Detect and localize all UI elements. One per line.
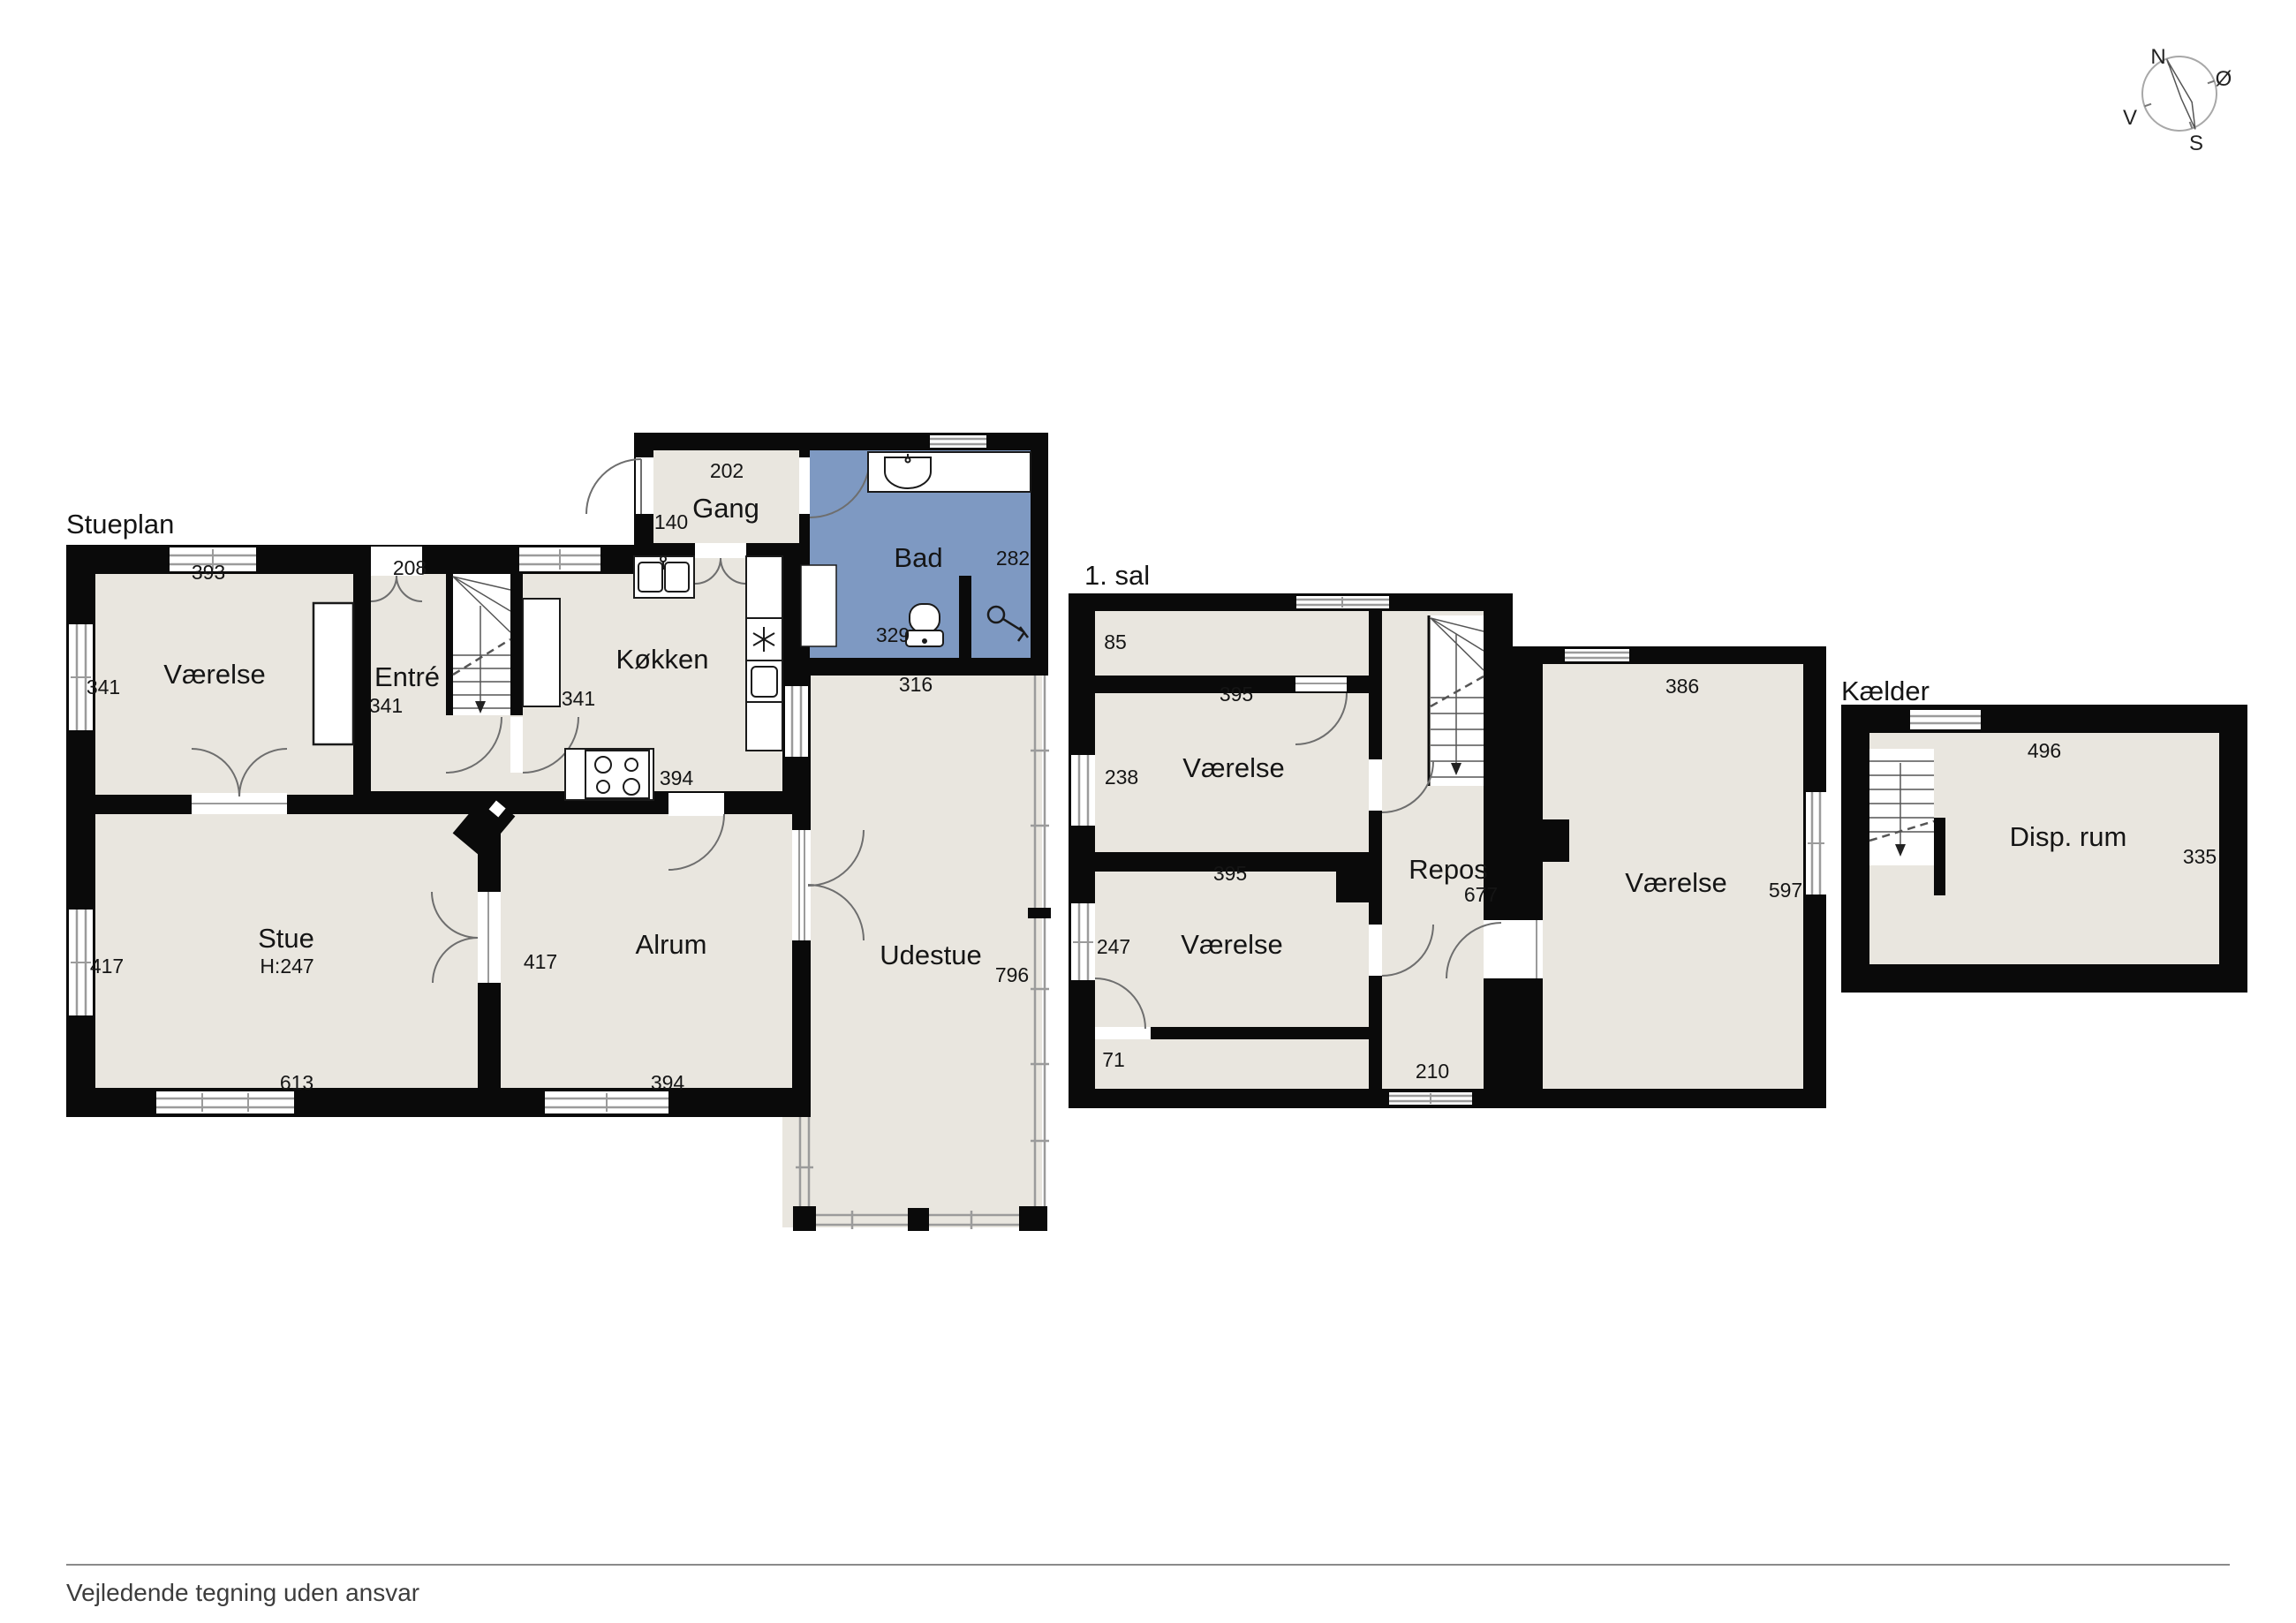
room-label-vaerelse-1: Værelse	[1182, 752, 1284, 783]
floor-first: 1. sal 85 395 Værelse 238 395 Værelse 24…	[1069, 560, 1826, 1108]
room-label-disp-rum: Disp. rum	[2010, 821, 2127, 852]
window	[1806, 792, 1826, 895]
stove-icon	[585, 751, 649, 798]
toilet-icon	[906, 604, 943, 646]
window	[156, 1091, 294, 1113]
door-opening	[799, 457, 810, 514]
window	[1296, 596, 1389, 608]
staircase-stueplan	[453, 574, 510, 715]
room-label-alrum: Alrum	[636, 929, 707, 960]
dim-alrum-height: 417	[524, 950, 557, 973]
dim-udestue-width: 316	[899, 673, 933, 696]
dim-stue-width: 613	[280, 1071, 313, 1094]
kitchen-cabinet	[523, 599, 560, 706]
window	[1389, 1092, 1472, 1105]
floor-title-stueplan: Stueplan	[66, 509, 174, 540]
window	[785, 686, 808, 757]
door-opening	[1484, 920, 1543, 978]
dim-disp-height: 335	[2183, 845, 2217, 868]
compass-east-label: Ø	[2216, 67, 2232, 91]
dim-hall-top: 85	[1104, 630, 1127, 653]
compass-north-label: N	[2150, 45, 2165, 69]
window	[930, 435, 986, 448]
hall-strip-top	[1095, 611, 1369, 676]
dim-vaerelse3-width: 386	[1665, 675, 1699, 698]
dim-gang-height: 140	[654, 510, 688, 533]
door-opening	[1369, 925, 1382, 976]
dim-vaerelse-height: 341	[87, 676, 120, 698]
window	[1565, 649, 1629, 661]
dim-hall-bottom: 71	[1102, 1048, 1125, 1071]
stair-rail-wall	[1934, 818, 1945, 895]
wall-post	[1336, 852, 1369, 902]
wardrobe-icon	[313, 603, 353, 744]
dim-vaerelse3-height: 597	[1769, 879, 1802, 902]
dim-disp-width: 496	[2028, 739, 2061, 762]
corner-post	[793, 1206, 816, 1231]
dim-entre-width: 208	[393, 556, 427, 579]
door-swing	[586, 459, 641, 514]
room-label-entre: Entré	[374, 661, 440, 692]
window	[519, 547, 600, 571]
wall-jog	[1543, 819, 1569, 862]
window	[1910, 710, 1981, 729]
room-label-udestue: Udestue	[880, 940, 981, 970]
footer-disclaimer: Vejledende tegning uden ansvar	[66, 1579, 419, 1606]
dim-udestue-height: 796	[995, 963, 1029, 986]
bathroom-sink-icon	[885, 454, 931, 488]
dim-entre-height: 341	[369, 694, 403, 717]
dim-koekken-width: 394	[660, 766, 694, 789]
corner-post	[1019, 1206, 1047, 1231]
room-label-vaerelse: Værelse	[163, 659, 265, 690]
dim-stue-ceiling: H:247	[260, 955, 313, 978]
dim-vaerelse1-width: 395	[1220, 683, 1253, 706]
dim-vaerelse2-height: 247	[1097, 935, 1130, 958]
door-opening	[695, 543, 746, 558]
kitchen-appliance-column	[746, 556, 782, 751]
compass-icon: N Ø S V	[2123, 45, 2232, 155]
dim-gang-width: 202	[710, 459, 744, 482]
room-label-koekken: Køkken	[616, 644, 708, 675]
floor-title-first: 1. sal	[1084, 560, 1150, 591]
floor-basement: Kælder 496 Disp. rum 335	[1841, 676, 2247, 993]
door-opening	[1369, 759, 1382, 811]
compass-needle-south	[2167, 57, 2201, 130]
window	[545, 1091, 668, 1113]
shower-tray	[801, 565, 836, 646]
staircase-first-floor	[1429, 615, 1484, 786]
room-label-vaerelse-2: Værelse	[1181, 929, 1282, 960]
door-opening	[636, 457, 653, 514]
room-label-stue: Stue	[258, 923, 314, 954]
floor-title-basement: Kælder	[1841, 676, 1930, 706]
dim-alrum-width: 394	[651, 1071, 685, 1094]
dim-bad-width: 282	[996, 547, 1030, 570]
dim-repos-width: 210	[1416, 1060, 1449, 1083]
door-opening	[792, 830, 811, 940]
compass-south-label: S	[2189, 132, 2203, 155]
hall-strip-bottom	[1095, 1039, 1369, 1089]
dim-koekken-height: 341	[562, 687, 595, 710]
dim-stue-height: 417	[90, 955, 124, 978]
door-opening	[510, 717, 523, 773]
compass-west-label: V	[2123, 106, 2137, 130]
dim-bad-depth: 329	[876, 623, 910, 646]
window	[1071, 903, 1095, 980]
floor-plan-drawing: Stueplan Værelse 393 341 Entré 208 341 G…	[0, 0, 2296, 1623]
room-label-vaerelse-3: Værelse	[1625, 867, 1726, 898]
corner-post	[908, 1208, 929, 1231]
window	[1071, 755, 1095, 826]
dim-repos-height: 677	[1464, 883, 1498, 906]
door-opening	[668, 793, 724, 816]
glazing-post	[1028, 908, 1051, 918]
room-label-repos: Repos	[1409, 854, 1488, 885]
dim-vaerelse-width: 393	[192, 561, 225, 584]
dim-vaerelse2-width: 395	[1213, 862, 1247, 885]
room-label-bad: Bad	[894, 542, 942, 573]
bath-partition-wall	[959, 576, 971, 658]
dim-vaerelse1-height: 238	[1105, 766, 1138, 789]
floor-plan-page: Stueplan Værelse 393 341 Entré 208 341 G…	[0, 0, 2296, 1623]
room-label-gang: Gang	[692, 493, 759, 524]
door-opening	[1095, 1027, 1151, 1039]
